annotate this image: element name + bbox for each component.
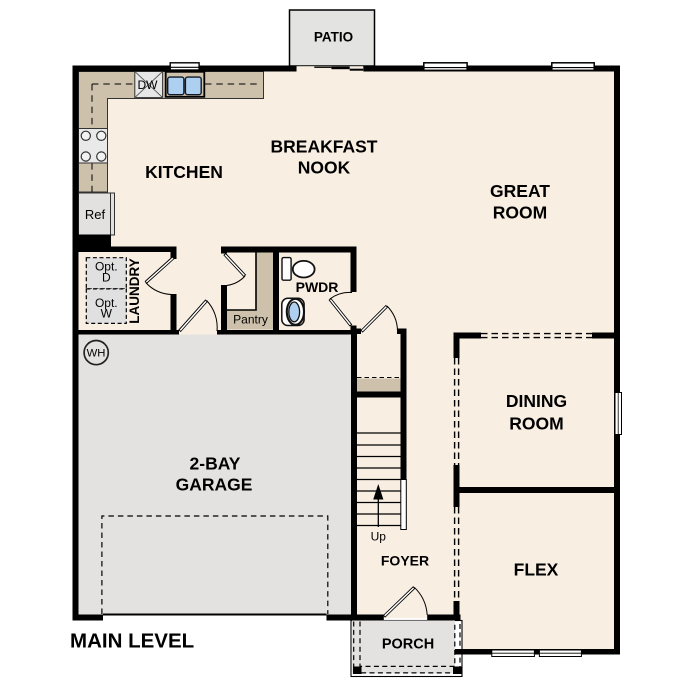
svg-text:ROOM: ROOM (509, 414, 563, 434)
svg-text:ROOM: ROOM (493, 203, 547, 223)
svg-text:KITCHEN: KITCHEN (145, 162, 223, 182)
svg-text:BREAKFAST: BREAKFAST (271, 137, 378, 157)
svg-text:Ref: Ref (85, 207, 106, 222)
svg-text:PWDR: PWDR (296, 279, 339, 295)
svg-text:Up: Up (371, 530, 387, 544)
svg-text:FOYER: FOYER (381, 553, 429, 569)
svg-text:PORCH: PORCH (382, 637, 434, 653)
svg-text:GARAGE: GARAGE (176, 475, 253, 495)
svg-text:DW: DW (138, 78, 159, 92)
svg-text:DINING: DINING (506, 391, 567, 411)
svg-text:PATIO: PATIO (314, 30, 353, 45)
svg-text:2-BAY: 2-BAY (190, 454, 241, 474)
svg-text:MAIN LEVEL: MAIN LEVEL (70, 630, 194, 653)
svg-text:W: W (101, 307, 113, 321)
svg-text:Pantry: Pantry (233, 313, 268, 327)
svg-text:GREAT: GREAT (490, 181, 550, 201)
svg-text:FLEX: FLEX (514, 560, 559, 580)
svg-text:LAUNDRY: LAUNDRY (127, 258, 142, 324)
svg-text:WH: WH (87, 348, 106, 360)
svg-text:D: D (102, 271, 111, 285)
svg-text:NOOK: NOOK (298, 158, 351, 178)
